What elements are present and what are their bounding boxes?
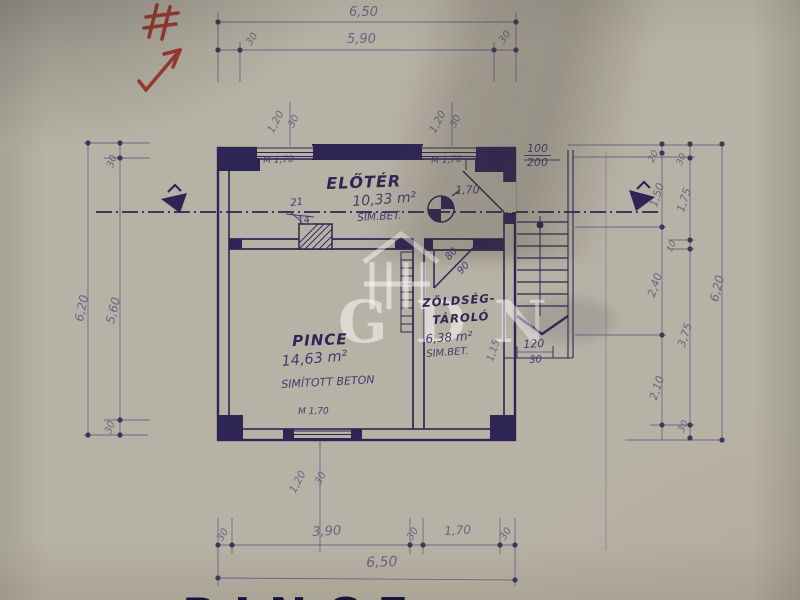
floorplan-photo: GDN ELŐTÉR 10,33 m² SIM.BET. PINCE 14,63… <box>0 0 800 600</box>
ink-smudge <box>515 298 615 342</box>
section-line <box>96 182 660 213</box>
red-pencil-mark-icon <box>139 5 180 90</box>
clipped-title-text: PINCE <box>182 588 427 600</box>
clipped-bottom-title: PINCE <box>182 588 602 600</box>
north-symbol-icon <box>428 190 460 222</box>
chimney <box>290 212 332 249</box>
